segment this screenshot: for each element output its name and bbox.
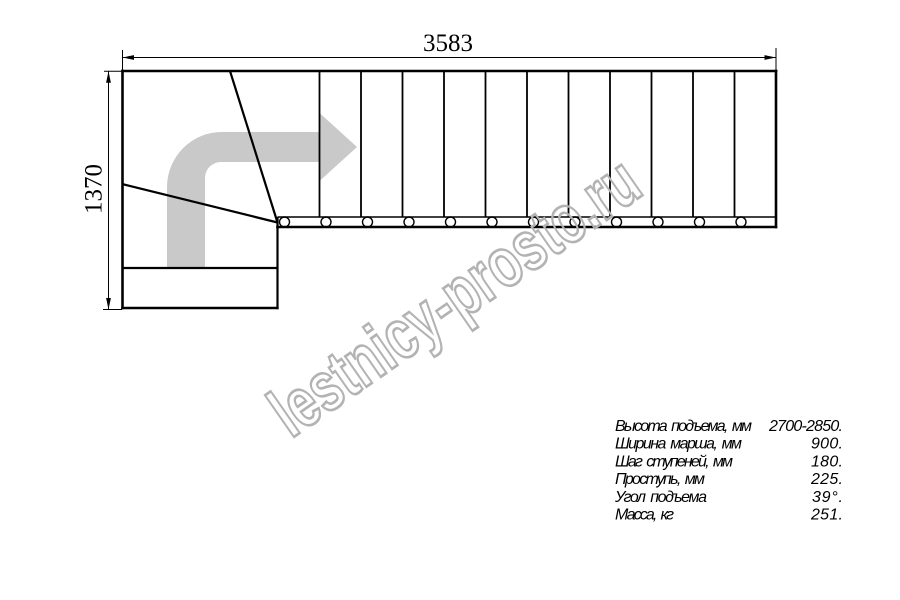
svg-text:225.: 225. [810, 471, 843, 488]
svg-text:3583: 3583 [423, 30, 473, 57]
svg-text:Ширина марша, мм: Ширина марша, мм [615, 436, 742, 453]
svg-text:Высота подъема, мм: Высота подъема, мм [615, 418, 752, 435]
svg-text:900.: 900. [811, 436, 843, 453]
svg-text:39°.: 39°. [812, 489, 843, 506]
svg-text:Проступь, мм: Проступь, мм [615, 471, 705, 488]
svg-text:180.: 180. [811, 453, 843, 470]
svg-text:Угол подъема: Угол подъема [614, 489, 707, 506]
svg-text:Шаг ступеней, мм: Шаг ступеней, мм [615, 453, 733, 470]
svg-text:251.: 251. [810, 507, 843, 524]
svg-text:2700-2850.: 2700-2850. [768, 418, 843, 435]
svg-text:1370: 1370 [81, 164, 108, 214]
svg-text:Масса, кг: Масса, кг [615, 507, 674, 524]
